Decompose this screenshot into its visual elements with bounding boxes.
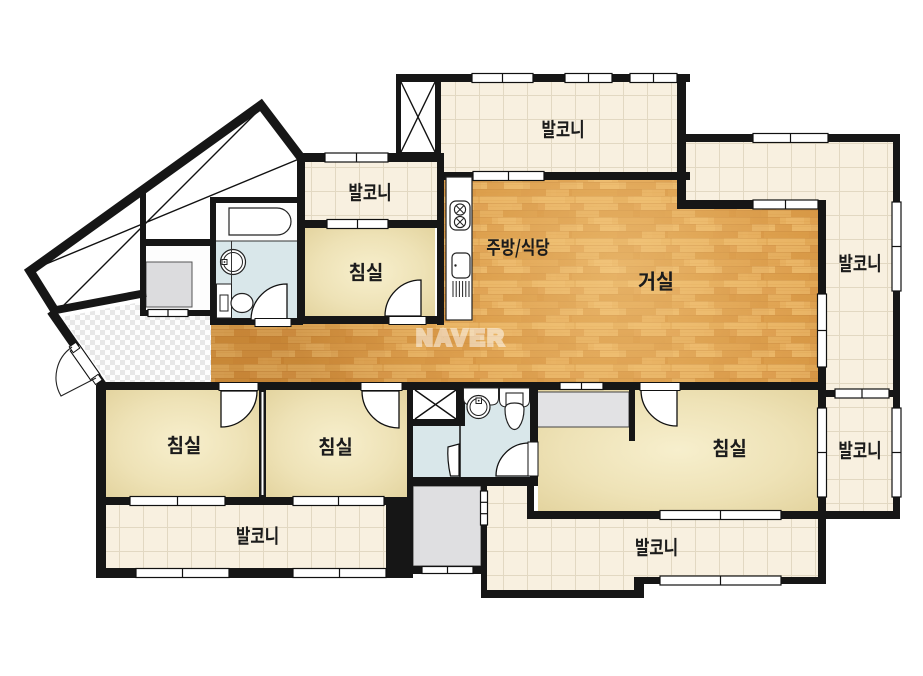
svg-text:NAVER: NAVER <box>416 325 506 351</box>
